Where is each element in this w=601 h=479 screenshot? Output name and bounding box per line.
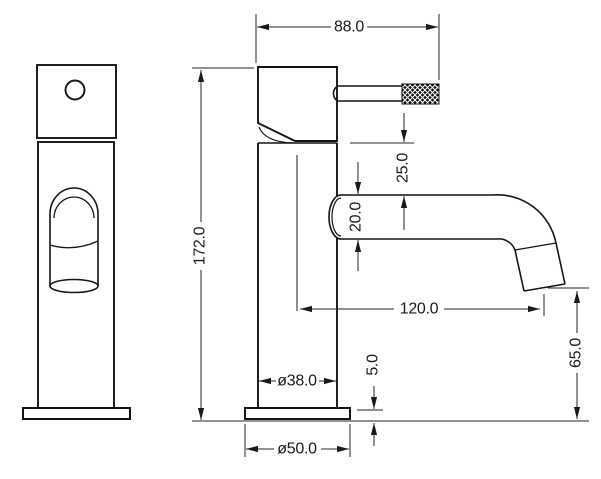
- front-spout-capsule: [50, 188, 98, 293]
- dimension-spout-tube-diameter-label: 20.0: [348, 202, 365, 232]
- dimension-overall-width-label: 88.0: [334, 19, 364, 36]
- dimension-base-diameter-label: ø50.0: [277, 441, 317, 458]
- dimension-outlet-clearance: 65.0: [548, 288, 589, 419]
- front-handle-button: [66, 81, 85, 100]
- side-base-plate: [245, 408, 350, 419]
- faucet-technical-drawing: 88.0 172.0 25.0 20.0 120.0 65.0: [0, 0, 601, 479]
- dimension-body-diameter-label: ø38.0: [277, 373, 317, 390]
- side-head: [258, 67, 337, 141]
- side-body: [258, 143, 337, 408]
- drawing-canvas: 88.0 172.0 25.0 20.0 120.0 65.0: [0, 0, 601, 479]
- dimension-spout-tube-diameter: 20.0: [348, 162, 365, 271]
- dimension-spout-reach-label: 120.0: [400, 301, 439, 318]
- side-view: [245, 67, 565, 419]
- dimension-head-to-spout-drop-label: 25.0: [395, 153, 412, 183]
- front-spout-outlet: [50, 280, 98, 293]
- dimension-outlet-clearance-label: 65.0: [568, 338, 585, 368]
- dimension-base-diameter: ø50.0: [245, 424, 350, 458]
- side-head-corner-arc: [259, 127, 293, 143]
- side-lever: [333, 84, 439, 104]
- front-base-plate: [23, 408, 130, 419]
- dimension-body-diameter: ø38.0: [259, 373, 336, 390]
- front-head: [37, 65, 116, 138]
- dimension-base-plate-height: 5.0: [357, 354, 383, 446]
- dimension-overall-height-label: 172.0: [192, 226, 209, 265]
- dimension-base-plate-height-label: 5.0: [365, 354, 382, 376]
- dimension-overall-width: 88.0: [256, 14, 439, 80]
- front-view: [23, 65, 130, 419]
- knurled-grip: [402, 84, 439, 104]
- dimension-overall-height: 172.0: [192, 68, 255, 420]
